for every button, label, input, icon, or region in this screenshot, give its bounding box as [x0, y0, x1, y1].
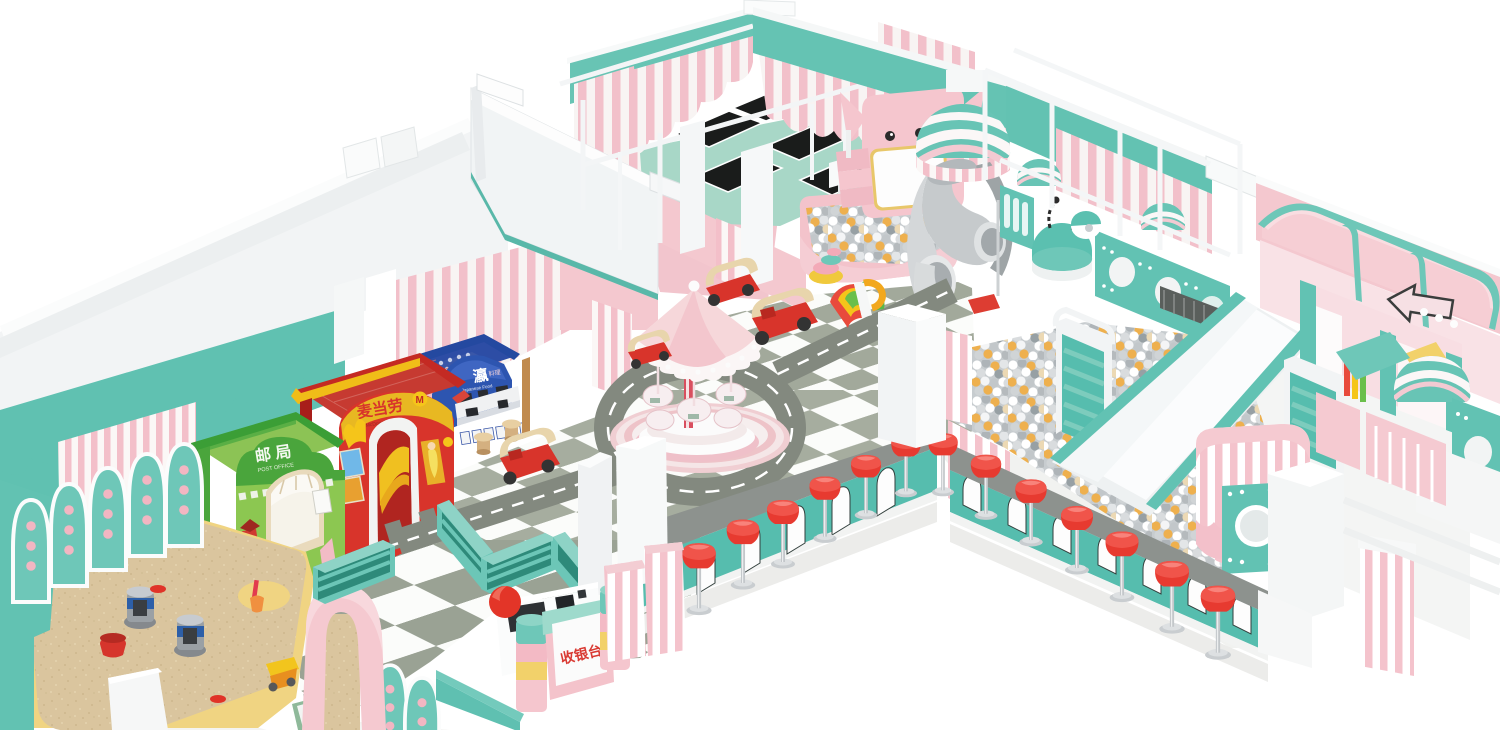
svg-text:M: M — [416, 395, 424, 406]
svg-text:瀛: 瀛 — [472, 366, 490, 386]
